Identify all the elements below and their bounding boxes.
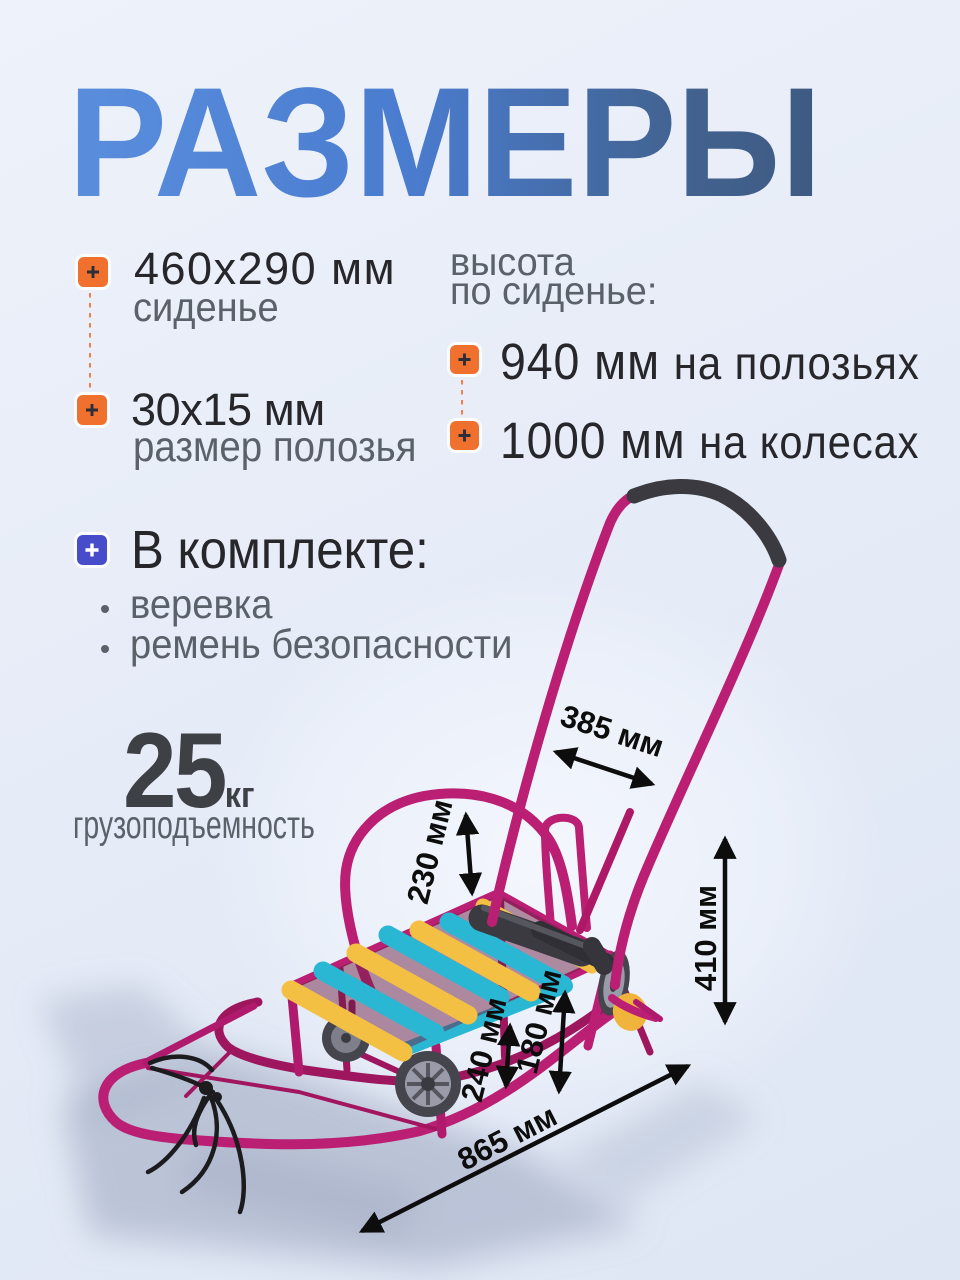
svg-text:410 мм: 410 мм	[688, 885, 723, 991]
svg-text:385 мм: 385 мм	[556, 698, 668, 764]
svg-text:230 мм: 230 мм	[400, 796, 460, 908]
